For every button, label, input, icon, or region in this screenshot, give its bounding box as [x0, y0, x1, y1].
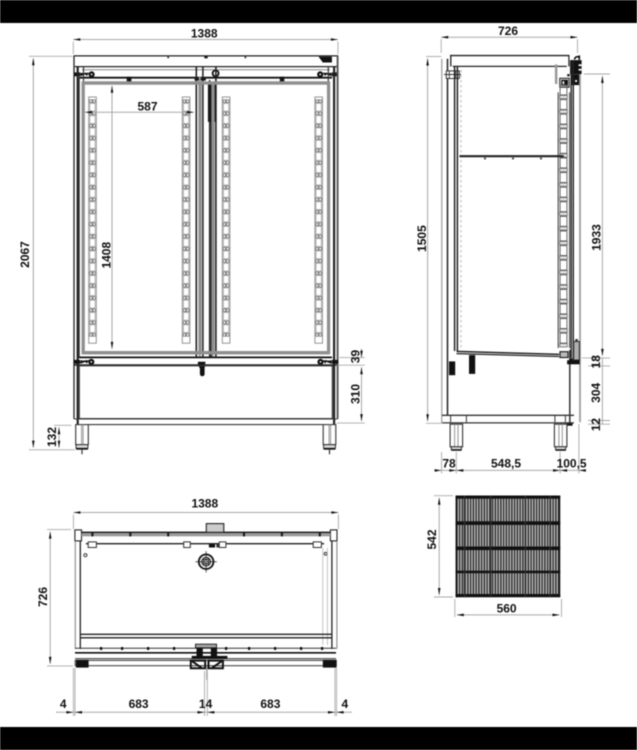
svg-text:560: 560 — [497, 601, 517, 615]
svg-text:78: 78 — [442, 457, 456, 471]
svg-text:1408: 1408 — [99, 242, 113, 269]
svg-text:132: 132 — [45, 427, 59, 447]
svg-text:726: 726 — [36, 587, 50, 607]
svg-text:12: 12 — [589, 418, 603, 432]
svg-text:4: 4 — [60, 697, 67, 711]
svg-text:587: 587 — [137, 99, 157, 113]
svg-text:4: 4 — [341, 697, 348, 711]
svg-text:39: 39 — [349, 350, 363, 364]
svg-text:18: 18 — [589, 355, 603, 369]
svg-text:726: 726 — [498, 24, 518, 38]
svg-text:1388: 1388 — [191, 27, 218, 41]
svg-text:548,5: 548,5 — [491, 457, 521, 471]
svg-text:683: 683 — [129, 697, 149, 711]
svg-text:100,5: 100,5 — [557, 457, 587, 471]
svg-text:310: 310 — [348, 384, 362, 404]
svg-text:1388: 1388 — [191, 496, 218, 510]
svg-text:542: 542 — [425, 529, 439, 549]
svg-text:1933: 1933 — [590, 224, 604, 251]
svg-text:2067: 2067 — [18, 241, 32, 268]
svg-text:683: 683 — [260, 697, 280, 711]
svg-text:14: 14 — [199, 697, 213, 711]
svg-text:1505: 1505 — [415, 225, 429, 252]
svg-text:304: 304 — [589, 382, 603, 402]
